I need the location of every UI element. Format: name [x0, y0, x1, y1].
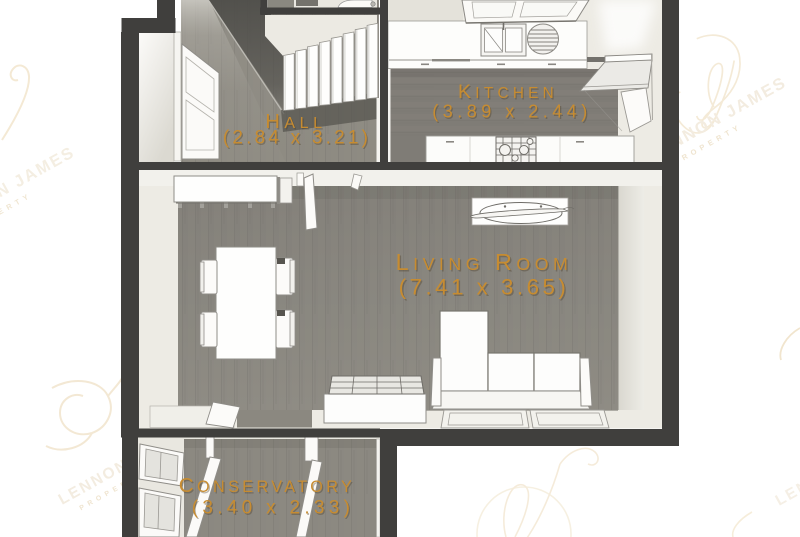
svg-text:(7.41 x 3.65): (7.41 x 3.65): [399, 275, 570, 300]
svg-text:(2.84 x 3.21): (2.84 x 3.21): [223, 128, 371, 149]
svg-text:KITCHEN: KITCHEN: [458, 81, 558, 103]
svg-text:(3.40 x 2.33): (3.40 x 2.33): [192, 498, 355, 519]
svg-text:(3.89 x 2.44): (3.89 x 2.44): [432, 102, 592, 122]
svg-text:CONSERVATORY: CONSERVATORY: [179, 474, 356, 497]
